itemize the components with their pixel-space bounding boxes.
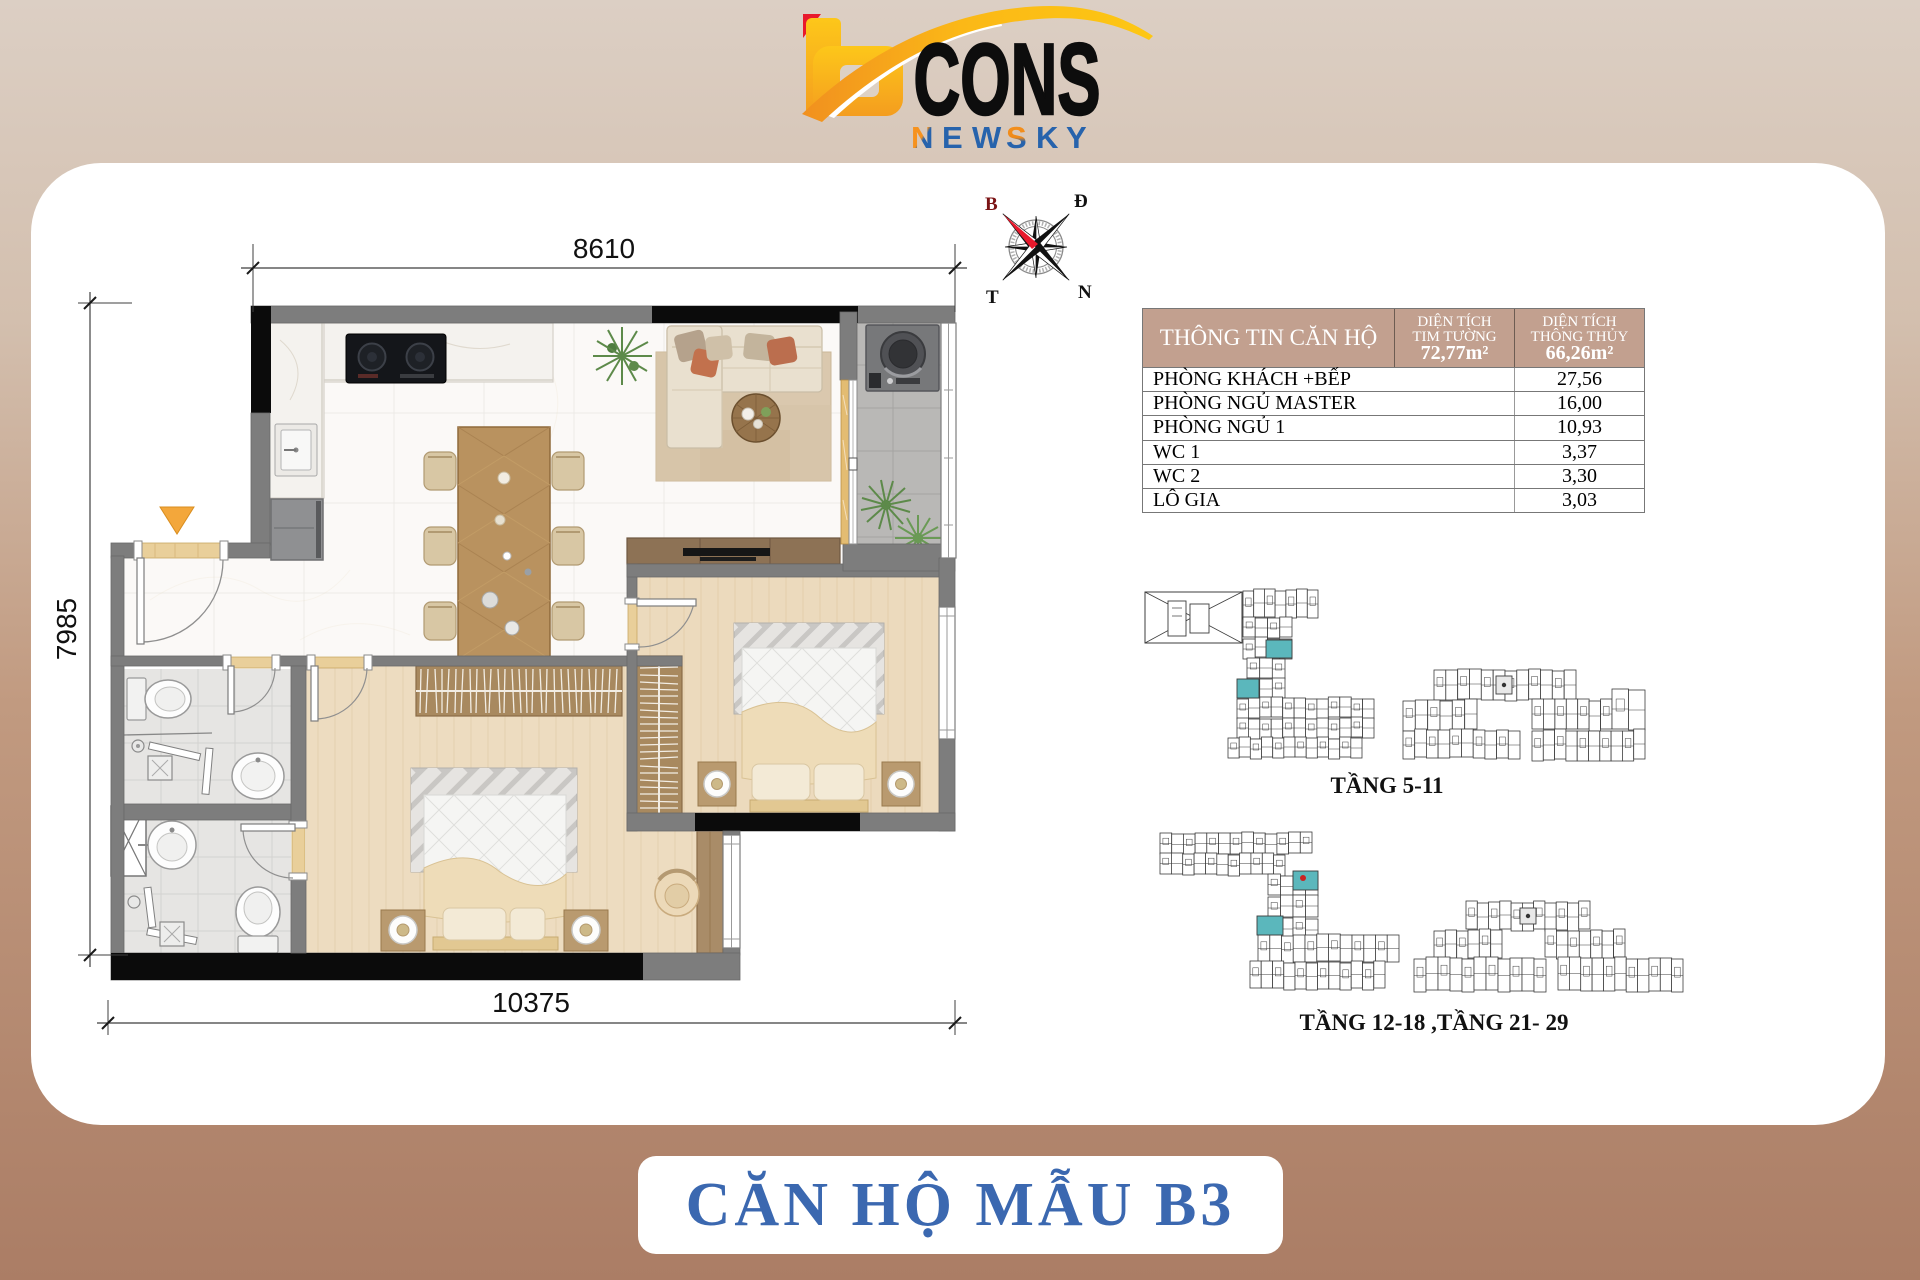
svg-text:N: N: [1078, 282, 1092, 303]
svg-text:T: T: [986, 287, 999, 308]
svg-text:K: K: [1036, 120, 1059, 155]
svg-text:Đ: Đ: [1074, 191, 1088, 212]
svg-text:Y: Y: [1066, 120, 1087, 155]
svg-text:S: S: [1006, 120, 1027, 155]
svg-text:TẦNG 12-18 ,TẦNG 21- 29: TẦNG 12-18 ,TẦNG 21- 29: [1300, 1009, 1569, 1035]
svg-text:TẦNG 5-11: TẦNG 5-11: [1330, 772, 1443, 798]
svg-text:B: B: [985, 194, 998, 215]
svg-text:8610: 8610: [573, 233, 635, 264]
svg-text:E: E: [942, 120, 963, 155]
svg-text:W: W: [972, 120, 1002, 155]
svg-text:7985: 7985: [51, 598, 82, 660]
svg-text:N: N: [911, 120, 933, 155]
svg-text:10375: 10375: [492, 987, 570, 1018]
